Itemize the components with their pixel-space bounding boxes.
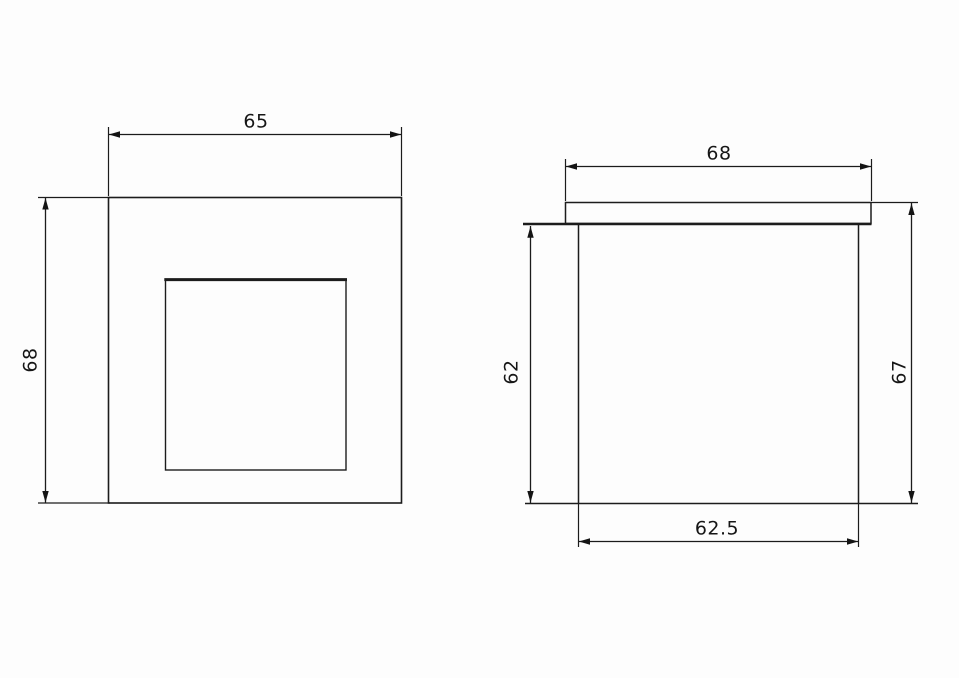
arrowhead-bottom <box>908 491 914 503</box>
drawing-canvas: 65 68 68 62 67 62.5 <box>0 0 959 678</box>
front-dim-height <box>38 198 110 504</box>
front-height-dimension-label: 68 <box>22 347 41 372</box>
front-outer-square <box>109 198 402 504</box>
side-dim-top-width <box>566 159 872 201</box>
arrowhead-right <box>847 538 858 544</box>
arrowhead-top <box>527 226 533 238</box>
arrowhead-bottom <box>42 491 48 503</box>
side-right-height-dimension-label: 67 <box>891 359 910 384</box>
arrowhead-top <box>42 198 48 210</box>
technical-drawing-svg <box>0 0 959 678</box>
arrowhead-left <box>566 163 577 169</box>
side-dim-left-height <box>527 226 533 503</box>
arrowhead-bottom <box>527 491 533 503</box>
arrowhead-left <box>109 131 120 137</box>
side-view <box>523 159 918 547</box>
front-dim-width <box>109 127 402 196</box>
front-inner-square <box>166 280 347 471</box>
side-dim-right-height <box>871 203 918 504</box>
front-view <box>38 127 402 503</box>
front-width-dimension-label: 65 <box>243 113 268 132</box>
side-flange <box>566 203 872 224</box>
side-bottom-width-dimension-label: 62.5 <box>695 520 739 539</box>
side-left-height-dimension-label: 62 <box>503 359 522 384</box>
arrowhead-right <box>860 163 871 169</box>
arrowhead-top <box>908 203 914 215</box>
arrowhead-right <box>390 131 401 137</box>
arrowhead-left <box>579 538 590 544</box>
side-top-width-dimension-label: 68 <box>706 145 731 164</box>
